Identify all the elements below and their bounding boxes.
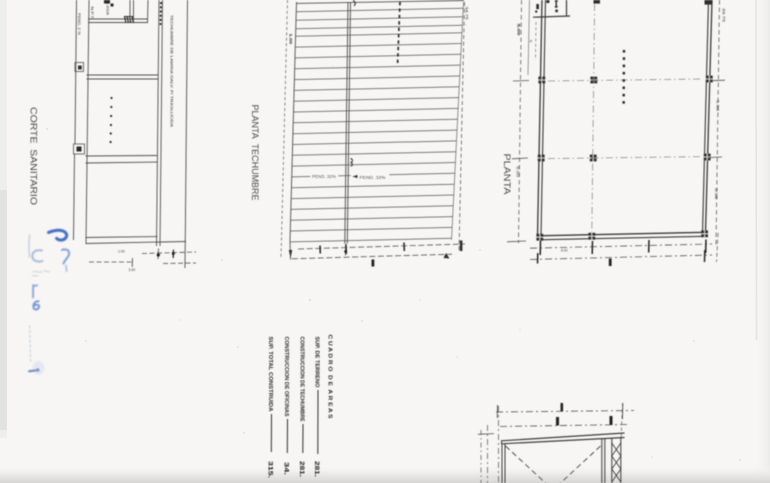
svg-text:34.75: 34.75 bbox=[465, 7, 469, 20]
svg-text:SUP. DE TERRENO: SUP. DE TERRENO bbox=[314, 337, 320, 389]
svg-text:C U A D R O D E A R E A S: C U A D R O D E A R E A S bbox=[327, 335, 333, 419]
svg-text:281.: 281. bbox=[313, 461, 319, 477]
svg-text:CONSTRUCCION DE OFICINAS: CONSTRUCCION DE OFICINAS bbox=[283, 337, 289, 417]
svg-text:PLANTA TECHUMBRE: PLANTA TECHUMBRE bbox=[250, 105, 260, 201]
svg-text:CONSTRUCCION DE TECHUMBRE: CONSTRUCCION DE TECHUMBRE bbox=[299, 337, 305, 422]
svg-text:PEND. 2 %: PEND. 2 % bbox=[77, 13, 82, 35]
svg-text:PLANTA: PLANTA bbox=[502, 154, 512, 196]
svg-text:39.75: 39.75 bbox=[722, 8, 726, 22]
svg-text:SUP. TOTAL CONSTRUIDA: SUP. TOTAL CONSTRUIDA bbox=[267, 337, 273, 412]
svg-text:PEND. 32%: PEND. 32% bbox=[312, 174, 336, 179]
svg-text:1.00: 1.00 bbox=[118, 250, 125, 254]
svg-text:34.: 34. bbox=[283, 462, 289, 476]
svg-text:281.: 281. bbox=[298, 461, 304, 477]
svg-text:TECHUMBRE DE LAMINA GALV. P/ T: TECHUMBRE DE LAMINA GALV. P/ TRASLUCIDA bbox=[170, 15, 174, 128]
svg-text:5.00: 5.00 bbox=[517, 24, 522, 37]
svg-text:CORTE SANITARIO: CORTE SANITARIO bbox=[29, 107, 39, 205]
svg-text:5.98: 5.98 bbox=[714, 188, 718, 199]
svg-text:N.P.T.: N.P.T. bbox=[90, 7, 94, 20]
svg-text:3.00: 3.00 bbox=[129, 268, 136, 272]
svg-text:315.: 315. bbox=[267, 461, 273, 478]
svg-text:B. AGUA: B. AGUA bbox=[106, 2, 110, 16]
svg-text:1.00: 1.00 bbox=[288, 34, 293, 46]
svg-text:5.00: 5.00 bbox=[516, 166, 520, 177]
svg-text:PEND. 32%: PEND. 32% bbox=[360, 175, 386, 180]
svg-text:5.98: 5.98 bbox=[716, 100, 720, 111]
svg-text:6.02: 6.02 bbox=[561, 249, 568, 253]
